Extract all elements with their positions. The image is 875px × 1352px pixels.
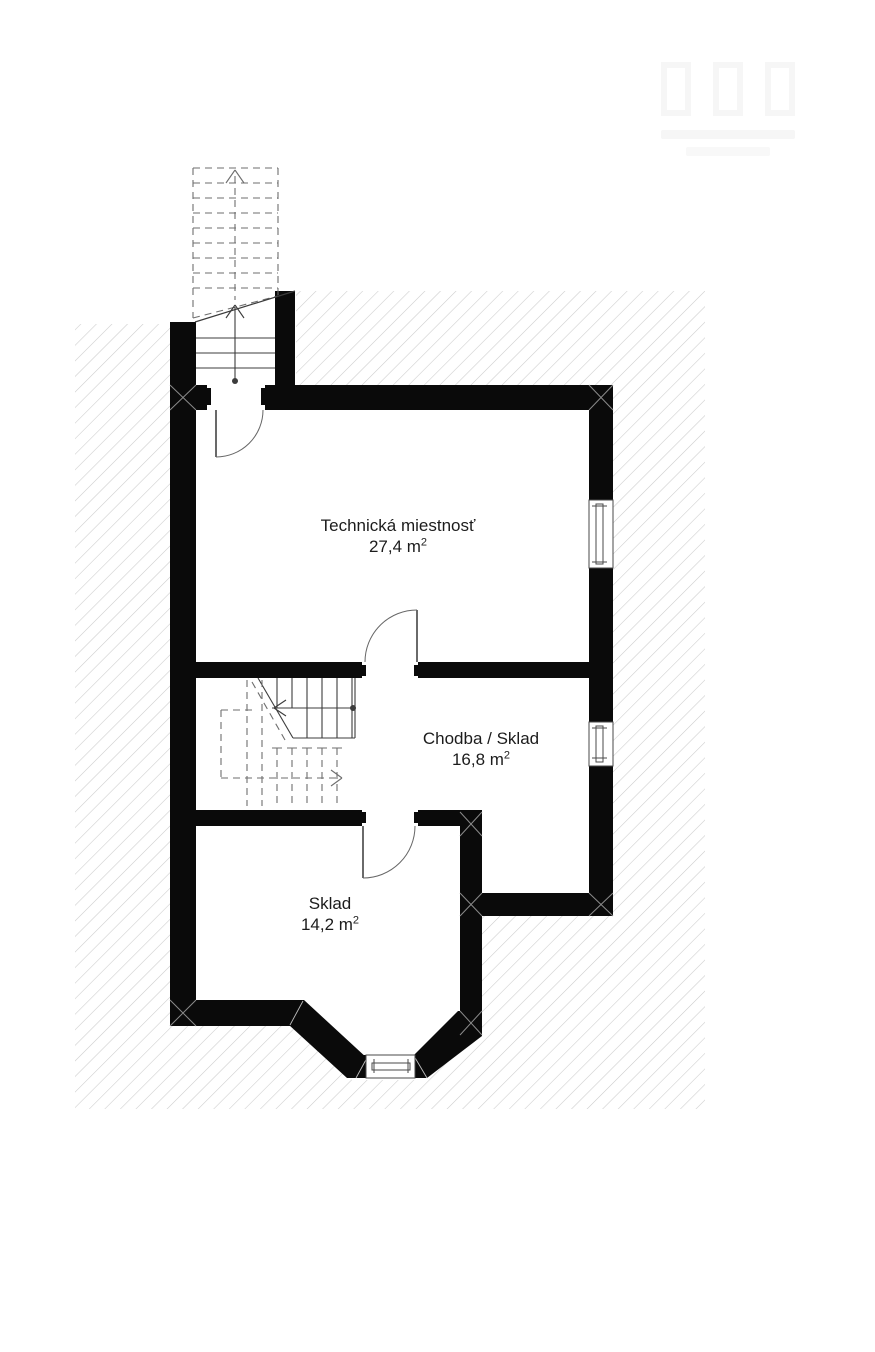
right-wall [589,385,613,916]
middle-wall-1-right [418,662,589,678]
watermark-glyph [765,62,795,116]
watermark-subtext [686,147,770,156]
floor-plan-drawing [0,0,875,1352]
room-area: 27,4 m2 [321,536,476,557]
middle-wall-1-left [196,662,362,678]
room-label-technicka: Technická miestnosť 27,4 m2 [321,515,476,557]
room-area: 14,2 m2 [301,914,359,935]
middle-wall-2-right [418,810,460,826]
middle-wall-2-left [196,810,362,826]
watermark-glyph [661,62,691,116]
stair-enclosure-left-wall [170,322,196,385]
room-label-chodba: Chodba / Sklad 16,8 m2 [423,728,539,770]
room-name: Sklad [301,893,359,914]
top-wall-right [265,385,613,410]
floor-plan-canvas: Technická miestnosť 27,4 m2 Chodba / Skl… [0,0,875,1352]
bottom-left-wall [196,1000,304,1026]
watermark-bar [661,130,795,139]
room-area: 16,8 m2 [423,749,539,770]
window-technicka [589,500,613,568]
window-chodba [589,722,613,766]
watermark-glyph [713,62,743,116]
bottom-right-wall [460,893,613,916]
room-label-sklad: Sklad 14,2 m2 [301,893,359,935]
watermark-logo [661,62,795,162]
stair-enclosure-right-wall [275,291,295,385]
room-name: Chodba / Sklad [423,728,539,749]
left-wall [170,385,196,1026]
sklad-right-wall [460,810,482,1035]
room-name: Technická miestnosť [321,515,476,536]
window-bay [366,1055,415,1078]
